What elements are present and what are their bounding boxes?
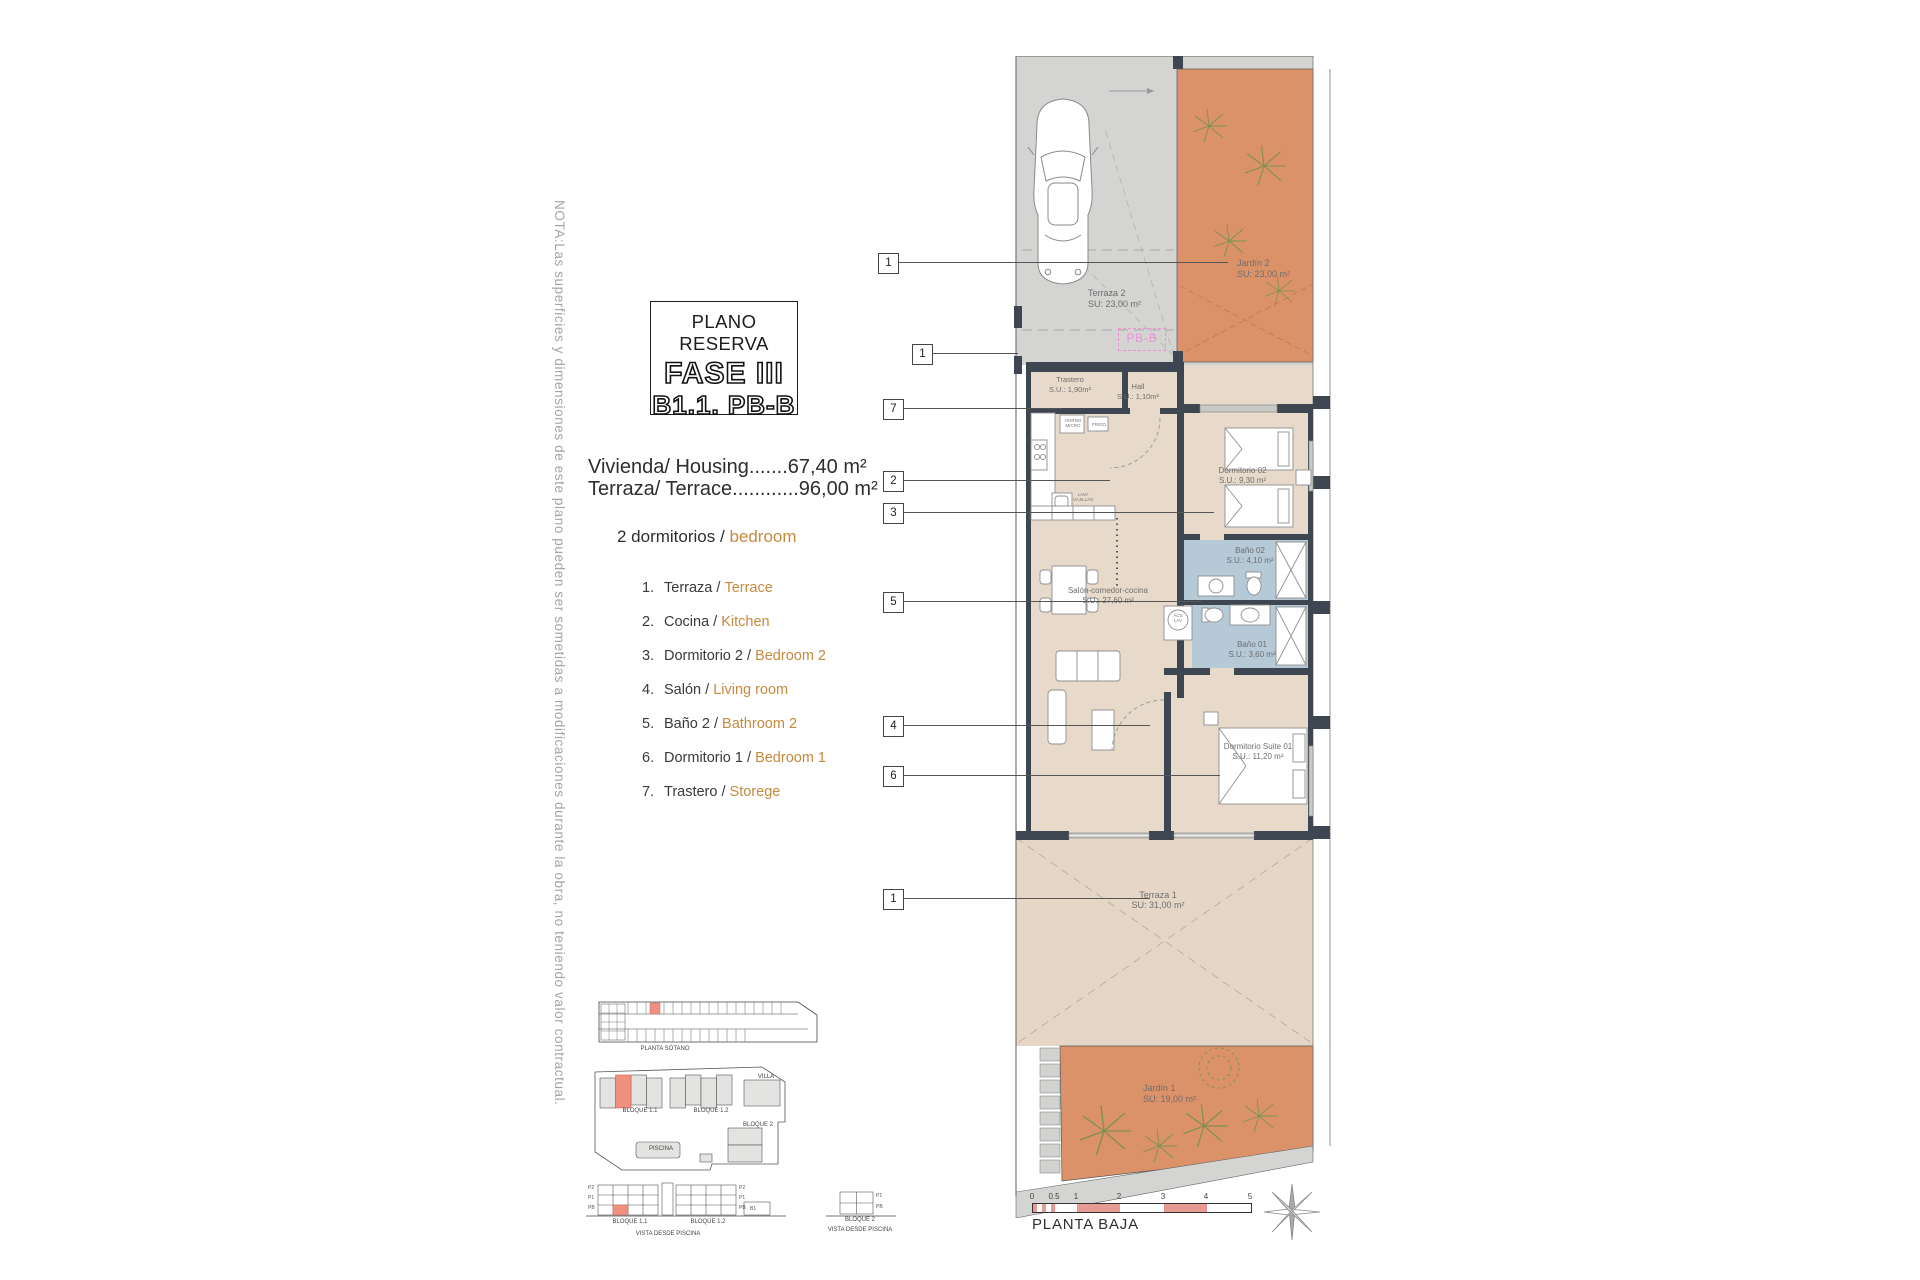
- callout-line: [902, 480, 1110, 481]
- highlighted-unit: [613, 1205, 628, 1215]
- unit-title: B1.1. PB-B: [651, 392, 797, 419]
- callout-1b: 1: [912, 344, 933, 365]
- legend-es: Baño 2 /: [664, 716, 718, 732]
- bedrooms-line: 2 dormitorios / bedroom: [617, 527, 797, 547]
- legend-item: 3.Dormitorio 2 / Bedroom 2: [642, 648, 826, 664]
- callout-line: [902, 898, 1150, 899]
- housing-area-line: Vivienda/ Housing.......67,40 m²: [588, 456, 878, 478]
- legend-es: Salón /: [664, 682, 709, 698]
- floor-label: PB: [739, 1205, 746, 1211]
- bloque12-elev-label: BLOQUE 1.2: [678, 1219, 738, 1225]
- basement-plan-thumbnail: [598, 1001, 818, 1045]
- callout-line: [902, 775, 1220, 776]
- floorplan-drawing: [1014, 56, 1334, 1218]
- legend-num: 1.: [642, 580, 664, 596]
- legend-num: 4.: [642, 682, 664, 698]
- scale-tick: 1: [1074, 1192, 1078, 1201]
- scale-tick: 2: [1117, 1192, 1121, 1201]
- scale-tick: 4: [1204, 1192, 1208, 1201]
- bedrooms-es: 2 dormitorios /: [617, 527, 725, 546]
- scale-bar: [1032, 1203, 1252, 1213]
- callout-3: 3: [883, 503, 904, 524]
- legend-es: Dormitorio 1 /: [664, 750, 751, 766]
- room-legend: 1.Terraza / Terrace 2.Cocina / Kitchen 3…: [642, 580, 826, 818]
- callout-line: [902, 601, 1202, 602]
- plan-caption: PLANTA BAJA: [1032, 1216, 1139, 1233]
- scale-tick: 5: [1248, 1192, 1252, 1201]
- legend-es: Dormitorio 2 /: [664, 648, 751, 664]
- legend-item: 1.Terraza / Terrace: [642, 580, 826, 596]
- floor-label: PB: [588, 1205, 595, 1211]
- callout-1c: 1: [883, 889, 904, 910]
- terrace-area-line: Terraza/ Terrace............96,00 m²: [588, 478, 878, 500]
- legend-num: 5.: [642, 716, 664, 732]
- floor-label: P2: [739, 1185, 745, 1191]
- floor-label: P1: [739, 1195, 745, 1201]
- salon-label: Salón-comedor-cocinaS.U.: 27,60 m²: [1062, 586, 1154, 605]
- trastero-label: TrasteroS.U.: 1,90m²: [1040, 375, 1100, 394]
- legend-num: 2.: [642, 614, 664, 630]
- villa-label: VILLA: [748, 1074, 784, 1080]
- bedrooms-en: bedroom: [729, 527, 796, 546]
- callout-line: [902, 512, 1214, 513]
- legend-en: Terrace: [724, 580, 772, 596]
- floor-label: PB: [876, 1204, 883, 1210]
- legend-item: 5.Baño 2 / Bathroom 2: [642, 716, 826, 732]
- suite-label: Dormitorio Suite 01S.U.: 11,20 m²: [1212, 742, 1304, 761]
- phase-title: FASE III: [651, 358, 797, 390]
- legend-en: Kitchen: [721, 614, 769, 630]
- site-plan-thumbnail: [592, 1064, 794, 1178]
- scale-tick: 3: [1161, 1192, 1165, 1201]
- callout-6: 6: [883, 766, 904, 787]
- bloque2-label: BLOQUE 2: [738, 1122, 778, 1128]
- piscina-label: PISCINA: [640, 1146, 682, 1152]
- callout-7: 7: [883, 399, 904, 420]
- callout-2: 2: [883, 471, 904, 492]
- bano01-label: Baño 01S.U.: 3,60 m²: [1222, 640, 1282, 659]
- legend-es: Trastero /: [664, 784, 726, 800]
- callout-5: 5: [883, 592, 904, 613]
- legend-num: 7.: [642, 784, 664, 800]
- north-star-icon: [1262, 1182, 1322, 1242]
- bloque12-label: BLOQUE 1.2: [676, 1108, 746, 1114]
- jardin2-garden: [1177, 69, 1313, 362]
- garden-steps: [1040, 1048, 1060, 1173]
- dormitorio02-label: Dormitorio 02S.U.: 9,30 m²: [1205, 466, 1280, 485]
- callout-1: 1: [878, 253, 899, 274]
- bloque11-label: BLOQUE 1.1: [605, 1108, 675, 1114]
- terraza1-floor: [1016, 838, 1313, 1046]
- legend-en: Storege: [730, 784, 781, 800]
- hall-label: HallS.U.: 1,10m²: [1112, 382, 1164, 401]
- car-icon: [1028, 99, 1098, 284]
- callout-line: [902, 408, 1062, 409]
- basement-plan-label: PLANTA SÓTANO: [620, 1046, 710, 1052]
- legend-en: Bathroom 2: [722, 716, 797, 732]
- legend-es: Cocina /: [664, 614, 717, 630]
- callout-4: 4: [883, 716, 904, 737]
- legend-item: 6.Dormitorio 1 / Bedroom 1: [642, 750, 826, 766]
- area-summary: Vivienda/ Housing.......67,40 m² Terraza…: [588, 456, 878, 500]
- legend-item: 4.Salón / Living room: [642, 682, 826, 698]
- fridge-label: FRIGO: [1089, 422, 1109, 427]
- plan-subtitle: PLANO RESERVA: [651, 311, 797, 355]
- bano02-label: Baño 02S.U.: 4,10 m²: [1215, 546, 1285, 565]
- water-heater-label: ACSLAV: [1165, 613, 1191, 623]
- scale-ticks: 0 0.5 1 2 3 4 5: [1032, 1192, 1252, 1202]
- callout-line: [931, 353, 1018, 354]
- jardin2-label: Jardín 2SU: 23,00 m²: [1237, 258, 1290, 280]
- callout-line: [902, 725, 1150, 726]
- terraza2-label: Terraza 2SU: 23,00 m²: [1088, 288, 1141, 310]
- highlighted-unit: [616, 1075, 632, 1108]
- oven-label: HORNOMICRO: [1061, 418, 1085, 428]
- legend-en: Bedroom 1: [755, 750, 826, 766]
- scale-tick: 0: [1030, 1192, 1034, 1201]
- legend-num: 3.: [642, 648, 664, 664]
- dishwasher-label: LAVAVAJILLAS: [1066, 492, 1100, 502]
- floor-label: P1: [876, 1193, 882, 1199]
- vista-piscina-label: VISTA DESDE PISCINA: [822, 1227, 898, 1233]
- floor-label: P1: [588, 1195, 594, 1201]
- unit-tag: PB-B: [1118, 328, 1166, 351]
- legend-num: 6.: [642, 750, 664, 766]
- legend-item: 2.Cocina / Kitchen: [642, 614, 826, 630]
- highlighted-unit: [650, 1003, 660, 1014]
- disclaimer-note: NOTA:Las superficies y dimensiones de es…: [552, 200, 567, 1120]
- legend-es: Terraza /: [664, 580, 720, 596]
- floorplan-sheet: NOTA:Las superficies y dimensiones de es…: [0, 0, 1920, 1280]
- callout-line: [897, 262, 1228, 263]
- scale-tick: 0.5: [1048, 1192, 1059, 1201]
- floor-label: P2: [588, 1185, 594, 1191]
- title-block: PLANO RESERVA FASE III B1.1. PB-B: [650, 301, 798, 415]
- bloque11-elev-label: BLOQUE 1.1: [600, 1219, 660, 1225]
- b1-label: B1: [750, 1206, 756, 1212]
- vista-piscina-label: VISTA DESDE PISCINA: [618, 1231, 718, 1237]
- jardin1-label: Jardín 1SU: 19,00 m²: [1143, 1083, 1196, 1105]
- legend-en: Bedroom 2: [755, 648, 826, 664]
- bloque2-elev-label: BLOQUE 2: [838, 1217, 882, 1223]
- legend-item: 7.Trastero / Storege: [642, 784, 826, 800]
- legend-en: Living room: [713, 682, 788, 698]
- terraza1-label: Terraza 1SU: 31,00 m²: [1118, 891, 1198, 910]
